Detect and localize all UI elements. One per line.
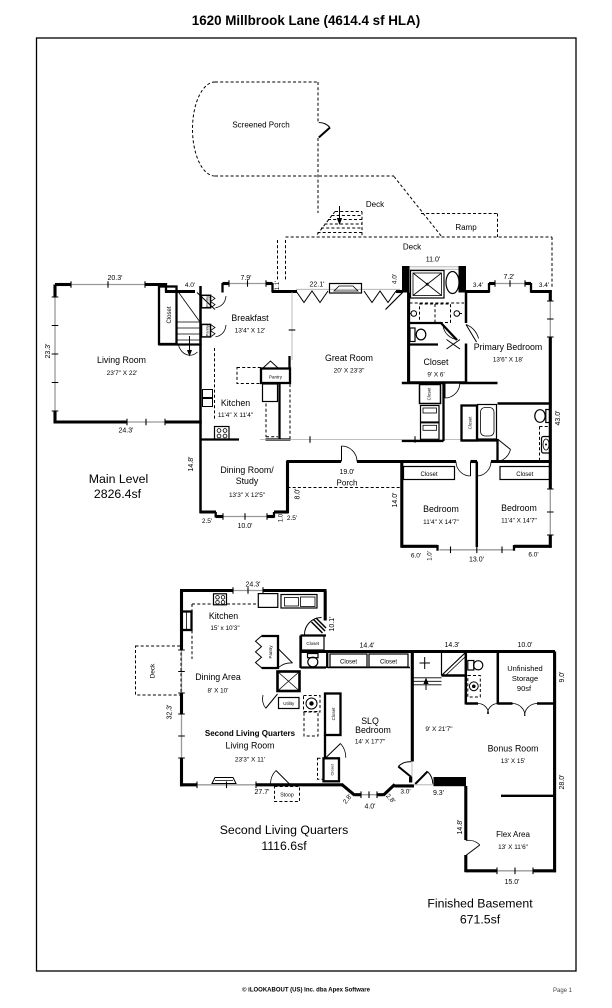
svg-text:Finished Basement: Finished Basement xyxy=(427,897,533,911)
svg-text:Deck: Deck xyxy=(150,663,157,679)
svg-text:Main Level: Main Level xyxy=(89,472,148,486)
svg-text:Ramp: Ramp xyxy=(455,223,477,232)
svg-text:23'3" X 11': 23'3" X 11' xyxy=(235,757,265,764)
svg-text:43.0': 43.0' xyxy=(555,411,562,426)
svg-text:Closet: Closet xyxy=(468,416,473,430)
svg-text:32.3': 32.3' xyxy=(167,705,174,720)
svg-text:Closet: Closet xyxy=(330,763,335,775)
svg-text:Closet: Closet xyxy=(516,472,533,478)
svg-text:Porch: Porch xyxy=(337,479,358,488)
svg-text:15' x 10'3": 15' x 10'3" xyxy=(210,625,239,632)
svg-text:15.0': 15.0' xyxy=(505,879,520,886)
svg-text:90sf: 90sf xyxy=(517,684,532,693)
svg-text:Second Living Quarters: Second Living Quarters xyxy=(220,823,349,837)
svg-text:8' X 10': 8' X 10' xyxy=(208,688,229,695)
svg-text:Closet: Closet xyxy=(306,641,320,646)
svg-text:Pantry: Pantry xyxy=(268,645,273,659)
svg-text:8.0': 8.0' xyxy=(295,488,302,499)
svg-text:3.4': 3.4' xyxy=(473,282,483,289)
svg-text:7.9': 7.9' xyxy=(240,275,251,282)
svg-text:10.0': 10.0' xyxy=(518,642,533,649)
svg-text:Living Room: Living Room xyxy=(226,741,275,751)
svg-text:2.5': 2.5' xyxy=(202,518,212,525)
svg-text:Deck: Deck xyxy=(403,243,422,252)
svg-text:3.4': 3.4' xyxy=(539,282,549,289)
svg-text:7.2': 7.2' xyxy=(503,274,514,281)
svg-text:1116.6sf: 1116.6sf xyxy=(261,839,307,853)
svg-text:Closet: Closet xyxy=(167,306,173,323)
svg-text:22.1': 22.1' xyxy=(310,282,325,289)
svg-text:3.0': 3.0' xyxy=(400,789,410,796)
svg-text:Breakfast: Breakfast xyxy=(231,313,269,323)
svg-text:Utility: Utility xyxy=(283,701,295,706)
svg-text:Unfinished: Unfinished xyxy=(507,664,542,673)
svg-text:Pantry: Pantry xyxy=(206,296,210,307)
svg-text:9.0': 9.0' xyxy=(559,671,566,682)
svg-text:4.0': 4.0' xyxy=(392,274,399,284)
svg-text:14.8': 14.8' xyxy=(188,457,195,472)
svg-text:9' X 6': 9' X 6' xyxy=(427,372,444,379)
svg-text:Dining Area: Dining Area xyxy=(195,672,241,682)
svg-text:1620 Millbrook Lane (4614.4 sf: 1620 Millbrook Lane (4614.4 sf HLA) xyxy=(192,13,420,28)
svg-text:1.0': 1.0' xyxy=(279,513,285,523)
svg-text:20' X 23'3": 20' X 23'3" xyxy=(334,368,366,375)
svg-text:Stoop: Stoop xyxy=(280,793,294,799)
svg-text:Kitchen: Kitchen xyxy=(209,611,238,621)
svg-text:Study: Study xyxy=(236,476,259,486)
svg-text:Pantry: Pantry xyxy=(205,325,209,336)
svg-text:Closet: Closet xyxy=(331,707,336,721)
svg-text:11.0': 11.0' xyxy=(426,257,440,264)
svg-text:11'4" X 11'4": 11'4" X 11'4" xyxy=(218,412,253,419)
svg-text:14.0': 14.0' xyxy=(392,493,399,508)
svg-text:13' X 15': 13' X 15' xyxy=(501,758,525,765)
svg-text:1.0': 1.0' xyxy=(428,551,434,561)
svg-text:Pantry: Pantry xyxy=(269,374,283,379)
svg-text:20.3': 20.3' xyxy=(108,275,123,282)
svg-text:Bedroom: Bedroom xyxy=(501,503,537,513)
svg-text:10.1': 10.1' xyxy=(329,617,336,632)
svg-text:23.3': 23.3' xyxy=(45,344,52,359)
svg-text:6.0': 6.0' xyxy=(411,553,421,560)
svg-text:13'3" X 12'5": 13'3" X 12'5" xyxy=(229,492,265,499)
svg-text:24.3': 24.3' xyxy=(119,428,134,435)
svg-text:19.0': 19.0' xyxy=(340,469,355,476)
svg-text:10.0': 10.0' xyxy=(238,523,253,530)
svg-text:Screened Porch: Screened Porch xyxy=(232,121,289,130)
svg-text:Closet: Closet xyxy=(420,472,437,478)
svg-text:Closet: Closet xyxy=(380,660,397,666)
svg-text:14' X 17'7": 14' X 17'7" xyxy=(355,739,385,746)
svg-text:Kitchen: Kitchen xyxy=(221,398,250,408)
svg-text:Page 1: Page 1 xyxy=(553,988,573,994)
svg-text:Dining Room/: Dining Room/ xyxy=(220,465,274,475)
svg-text:9.3': 9.3' xyxy=(433,790,444,797)
svg-text:© iLOOKABOUT (US) Inc. dba Ape: © iLOOKABOUT (US) Inc. dba Apex Software xyxy=(242,987,371,994)
svg-text:Great Room: Great Room xyxy=(325,353,373,363)
svg-text:Second Living Quarters: Second Living Quarters xyxy=(205,729,296,738)
svg-text:Flex Area: Flex Area xyxy=(496,830,530,839)
svg-text:13'4" X 12': 13'4" X 12' xyxy=(235,328,266,335)
svg-text:Primary Bedroom: Primary Bedroom xyxy=(474,342,542,352)
svg-text:671.5sf: 671.5sf xyxy=(460,913,501,927)
svg-text:24.3': 24.3' xyxy=(246,582,261,589)
svg-text:Storage: Storage xyxy=(512,674,538,683)
svg-text:Closet: Closet xyxy=(427,387,432,401)
svg-text:Closet: Closet xyxy=(340,660,357,666)
svg-text:Bedroom: Bedroom xyxy=(355,725,391,735)
svg-text:Living Room: Living Room xyxy=(97,355,146,365)
svg-text:28.0': 28.0' xyxy=(559,775,566,790)
svg-text:6.0': 6.0' xyxy=(528,552,538,559)
svg-text:13' X 11'6": 13' X 11'6" xyxy=(498,844,528,851)
svg-text:13'6" X 18': 13'6" X 18' xyxy=(493,357,523,364)
svg-text:23'7" X 22': 23'7" X 22' xyxy=(107,370,138,377)
svg-text:Closet: Closet xyxy=(424,357,449,367)
svg-text:14.8': 14.8' xyxy=(457,820,464,835)
svg-text:11'4" X 14'7": 11'4" X 14'7" xyxy=(423,519,459,526)
svg-text:2826.4sf: 2826.4sf xyxy=(94,487,142,501)
svg-text:1.1': 1.1' xyxy=(275,281,281,291)
svg-text:14.4': 14.4' xyxy=(360,643,375,650)
svg-text:4.0': 4.0' xyxy=(364,804,375,811)
svg-text:27.7': 27.7' xyxy=(255,789,270,796)
svg-text:2.5': 2.5' xyxy=(287,515,297,522)
svg-text:Deck: Deck xyxy=(366,200,385,209)
svg-text:14.3': 14.3' xyxy=(445,642,460,649)
svg-text:9' X 21'7": 9' X 21'7" xyxy=(425,726,453,733)
svg-text:13.0': 13.0' xyxy=(469,557,484,564)
svg-text:Bonus Room: Bonus Room xyxy=(488,744,539,754)
svg-text:11'4" X 14'7": 11'4" X 14'7" xyxy=(501,518,537,525)
svg-text:4.0': 4.0' xyxy=(185,282,195,289)
svg-text:Bedroom: Bedroom xyxy=(423,504,459,514)
